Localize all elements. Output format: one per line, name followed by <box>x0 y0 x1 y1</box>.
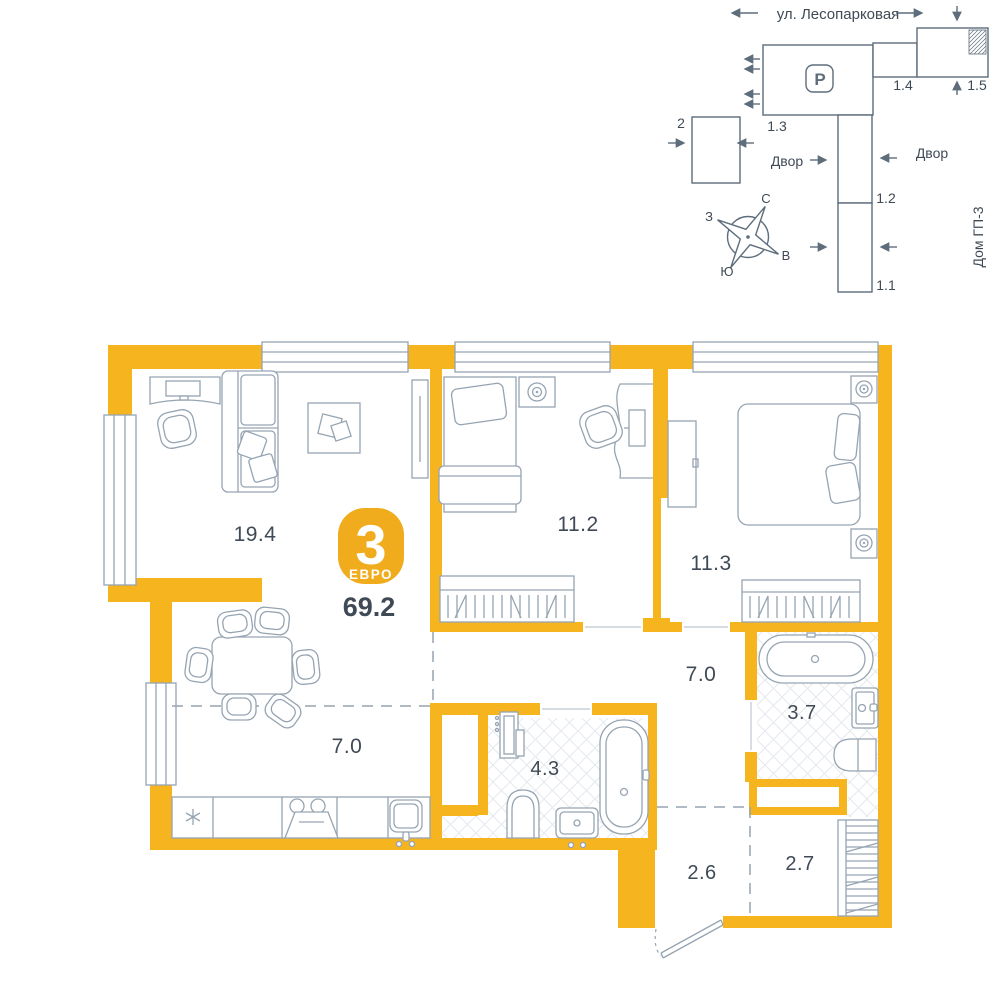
floor-plan: 3 ЕВРО 69.2 19.4 11.2 11.3 7.0 3.7 4.3 7… <box>104 342 892 958</box>
wall-niche-inner <box>478 715 488 815</box>
label-yard-left: Двор <box>771 153 804 169</box>
tv-unit <box>668 421 698 507</box>
area-label-bath-large: 4.3 <box>530 758 559 780</box>
dining-furniture <box>184 606 321 731</box>
wall-bath43-top-b <box>592 703 657 715</box>
compass-south: Ю <box>720 264 733 279</box>
chair <box>216 609 253 639</box>
bookshelf <box>412 380 428 478</box>
entry-door <box>655 920 723 958</box>
double-bed <box>738 404 861 525</box>
chair <box>254 606 291 635</box>
plan-type-badge: 3 ЕВРО <box>338 508 404 584</box>
compass: С З В Ю <box>705 191 790 279</box>
plan-type: ЕВРО <box>349 567 393 582</box>
hall-wardrobe <box>838 820 878 916</box>
wall-bedrooms-upper <box>653 369 668 498</box>
current-location-hatch <box>969 30 986 54</box>
area-label-hall: 2.6 <box>687 862 716 884</box>
parking-icon: P <box>806 65 833 92</box>
wall-niche-bottom <box>440 805 478 816</box>
area-label-wardrobe: 2.7 <box>785 853 814 875</box>
bathtub <box>759 633 873 683</box>
chair <box>262 691 305 732</box>
single-bed <box>439 377 521 512</box>
window-bedroom2 <box>693 342 878 372</box>
window-living-top <box>262 342 408 372</box>
bedroom1-furniture <box>439 377 653 622</box>
building-2 <box>692 117 740 183</box>
wall-bedroom2-stub <box>660 622 682 632</box>
toilet <box>834 739 876 771</box>
wall-bath43-top-a <box>430 703 540 715</box>
window-kitchen-left <box>146 683 176 785</box>
wall-bath37-left-a <box>745 628 757 700</box>
label-house-gp3: Дом ГП-3 <box>970 206 986 267</box>
window-bedroom1 <box>455 342 610 372</box>
sofa <box>222 371 278 492</box>
area-label-bedroom2: 11.3 <box>690 552 731 575</box>
total-area-label: 69.2 <box>343 592 396 622</box>
compass-west: З <box>705 209 713 224</box>
area-label-bath-small: 3.7 <box>787 702 816 724</box>
sink <box>852 688 878 728</box>
label-building-2: 2 <box>677 115 685 131</box>
floorplan-canvas: ул. Лесопарковая P 2 1.3 1.4 1.5 1.2 1.1… <box>0 0 1000 1000</box>
wall-bedroom1-bottom <box>430 622 583 632</box>
area-label-bedroom1: 11.2 <box>557 513 598 536</box>
street-label: ул. Лесопарковая <box>777 6 900 23</box>
chair <box>222 694 256 720</box>
nightstand-lamp <box>851 529 877 558</box>
nightstand-lamp <box>851 376 877 403</box>
area-label-corridor: 7.0 <box>686 663 717 686</box>
wardrobe <box>742 580 860 622</box>
wall-bath37-left-b <box>745 752 757 782</box>
chair <box>184 646 214 683</box>
label-building-12: 1.2 <box>876 190 896 206</box>
coffee-table <box>308 403 360 453</box>
label-building-14: 1.4 <box>893 77 913 93</box>
wall-right <box>878 345 892 928</box>
wardrobe <box>440 576 574 622</box>
compass-north: С <box>761 191 770 206</box>
desk <box>150 377 220 404</box>
window-living-left <box>104 415 136 585</box>
dining-table <box>212 637 292 694</box>
area-label-living: 19.4 <box>234 523 277 546</box>
label-building-11: 1.1 <box>876 277 896 293</box>
chair <box>291 649 320 686</box>
site-plan: ул. Лесопарковая P 2 1.3 1.4 1.5 1.2 1.1… <box>668 6 988 293</box>
compass-east: В <box>782 248 791 263</box>
living-room-furniture <box>150 371 428 492</box>
building-1-2 <box>838 115 872 203</box>
bedroom2-furniture <box>668 376 877 622</box>
desk-chair <box>156 408 199 451</box>
label-building-15: 1.5 <box>967 77 987 93</box>
floorplan-page: ул. Лесопарковая P 2 1.3 1.4 1.5 1.2 1.1… <box>0 0 1000 1000</box>
wall-niche-left <box>430 703 442 850</box>
wall-entry-pillar <box>618 850 655 928</box>
building-1-4 <box>873 43 917 77</box>
wall-bottom-right <box>723 916 892 928</box>
toilet <box>507 790 539 838</box>
svg-text:P: P <box>814 70 825 89</box>
bathtub <box>600 720 649 834</box>
duct-shaft-box <box>753 783 843 811</box>
building-1-1 <box>838 203 872 292</box>
label-yard-right: Двор <box>916 145 949 161</box>
wall-bedrooms-lower <box>653 498 661 618</box>
speaker-lamp <box>519 377 555 407</box>
area-label-kitchen: 7.0 <box>332 735 363 758</box>
label-building-13: 1.3 <box>767 118 787 134</box>
